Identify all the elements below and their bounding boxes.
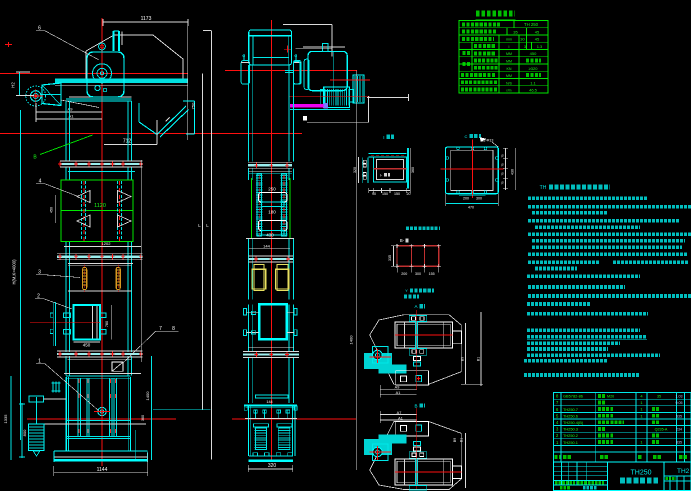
svg-text:35: 35 [513, 29, 518, 34]
svg-text:200: 200 [401, 272, 407, 276]
svg-text:1202: 1202 [102, 241, 112, 246]
svg-text:780: 780 [105, 321, 109, 327]
svg-text:450: 450 [50, 207, 54, 213]
svg-text:750: 750 [191, 102, 196, 109]
svg-text:B1: B1 [460, 438, 464, 442]
svg-text:800: 800 [22, 429, 27, 436]
svg-text:TH2: TH2 [677, 468, 690, 475]
svg-text:B9: B9 [453, 438, 457, 442]
svg-text:M20: M20 [607, 395, 614, 399]
svg-text:A7: A7 [397, 411, 402, 415]
svg-text:1.3: 1.3 [537, 44, 543, 49]
svg-text:20: 20 [407, 192, 411, 196]
svg-text:155: 155 [429, 272, 435, 276]
svg-text:470: 470 [468, 206, 474, 210]
svg-text:335: 335 [388, 255, 392, 261]
svg-text:r/m: r/m [507, 89, 512, 93]
svg-text:1144: 1144 [97, 467, 108, 473]
svg-text:l: l [509, 44, 510, 49]
svg-text:450: 450 [83, 343, 91, 348]
svg-text:9.05: 9.05 [676, 401, 683, 405]
svg-text:TH250.6: TH250.6 [563, 413, 578, 418]
svg-text:MM: MM [506, 60, 512, 64]
svg-text:1400: 1400 [349, 335, 354, 345]
svg-text:835: 835 [676, 441, 682, 445]
svg-text:MM: MM [506, 52, 512, 56]
svg-text:360: 360 [411, 167, 415, 173]
svg-text:TH250.1: TH250.1 [563, 440, 578, 445]
svg-text:75: 75 [501, 154, 505, 158]
svg-text:320: 320 [268, 463, 277, 469]
svg-text:KN: KN [507, 67, 512, 71]
svg-text:45: 45 [535, 29, 540, 34]
svg-text:1.03: 1.03 [676, 395, 683, 399]
svg-text:144: 144 [266, 400, 272, 404]
svg-text:450: 450 [530, 51, 537, 56]
svg-text:300: 300 [476, 197, 482, 201]
svg-text:35: 35 [657, 395, 661, 399]
svg-text:1.1: 1.1 [530, 80, 536, 85]
svg-text:mm: mm [506, 38, 512, 42]
svg-text:712: 712 [123, 139, 132, 145]
svg-text:Y: Y [405, 288, 408, 293]
svg-text:B1: B1 [476, 357, 480, 361]
svg-text:320: 320 [353, 167, 357, 173]
svg-text:B-: B- [400, 238, 405, 243]
svg-text:N/S: N/S [506, 81, 512, 85]
svg-text:1120: 1120 [94, 203, 106, 209]
svg-text:144: 144 [263, 244, 270, 249]
svg-text:234: 234 [676, 428, 682, 432]
svg-text:55: 55 [362, 161, 366, 165]
svg-text:B9: B9 [461, 357, 465, 361]
svg-text:150: 150 [394, 192, 400, 196]
svg-text:H2: H2 [11, 82, 16, 88]
svg-text:H(M,K=4000): H(M,K=4000) [12, 259, 17, 285]
svg-text:1173: 1173 [141, 16, 152, 22]
svg-text:TH250: TH250 [630, 470, 651, 477]
svg-text:TH250.7: TH250.7 [563, 407, 578, 412]
svg-text:90: 90 [372, 192, 376, 196]
svg-text:GB5782-86: GB5782-86 [563, 394, 583, 399]
svg-text:TH250.3: TH250.3 [563, 427, 578, 432]
svg-text:TH250.4(B): TH250.4(B) [563, 420, 584, 425]
svg-text:1335: 1335 [3, 414, 8, 424]
svg-text:75: 75 [501, 181, 505, 185]
svg-text:535: 535 [676, 414, 682, 418]
svg-text:430: 430 [511, 169, 515, 175]
svg-text:30: 30 [520, 37, 525, 42]
svg-text:75: 75 [501, 163, 505, 167]
svg-text:C: C [465, 134, 468, 139]
svg-text:200: 200 [463, 197, 469, 201]
svg-text:55: 55 [362, 173, 366, 177]
svg-text:360: 360 [141, 415, 145, 421]
svg-text:≥320: ≥320 [529, 66, 539, 71]
svg-text:TH: TH [540, 185, 547, 191]
svg-text:150: 150 [382, 192, 388, 196]
svg-text:45: 45 [535, 37, 540, 42]
svg-text:B: B [414, 403, 417, 408]
svg-text:A: A [414, 304, 417, 309]
svg-text:1400: 1400 [145, 391, 150, 401]
svg-text:180: 180 [268, 210, 276, 215]
svg-text:430: 430 [266, 233, 274, 238]
svg-text:A9: A9 [395, 385, 400, 389]
svg-text:A1: A1 [398, 416, 403, 420]
svg-text:A9: A9 [68, 107, 74, 112]
svg-text:75: 75 [501, 172, 505, 176]
svg-text:MM: MM [506, 74, 512, 78]
svg-text:TH250.2: TH250.2 [563, 433, 578, 438]
svg-text:TH 250: TH 250 [524, 22, 539, 27]
svg-text:Q235-A: Q235-A [655, 428, 668, 432]
svg-text:A1: A1 [396, 391, 401, 395]
svg-text:300: 300 [415, 272, 421, 276]
svg-text:I: I [383, 135, 384, 140]
svg-text:46.5: 46.5 [529, 88, 538, 93]
svg-text:250: 250 [268, 187, 276, 192]
